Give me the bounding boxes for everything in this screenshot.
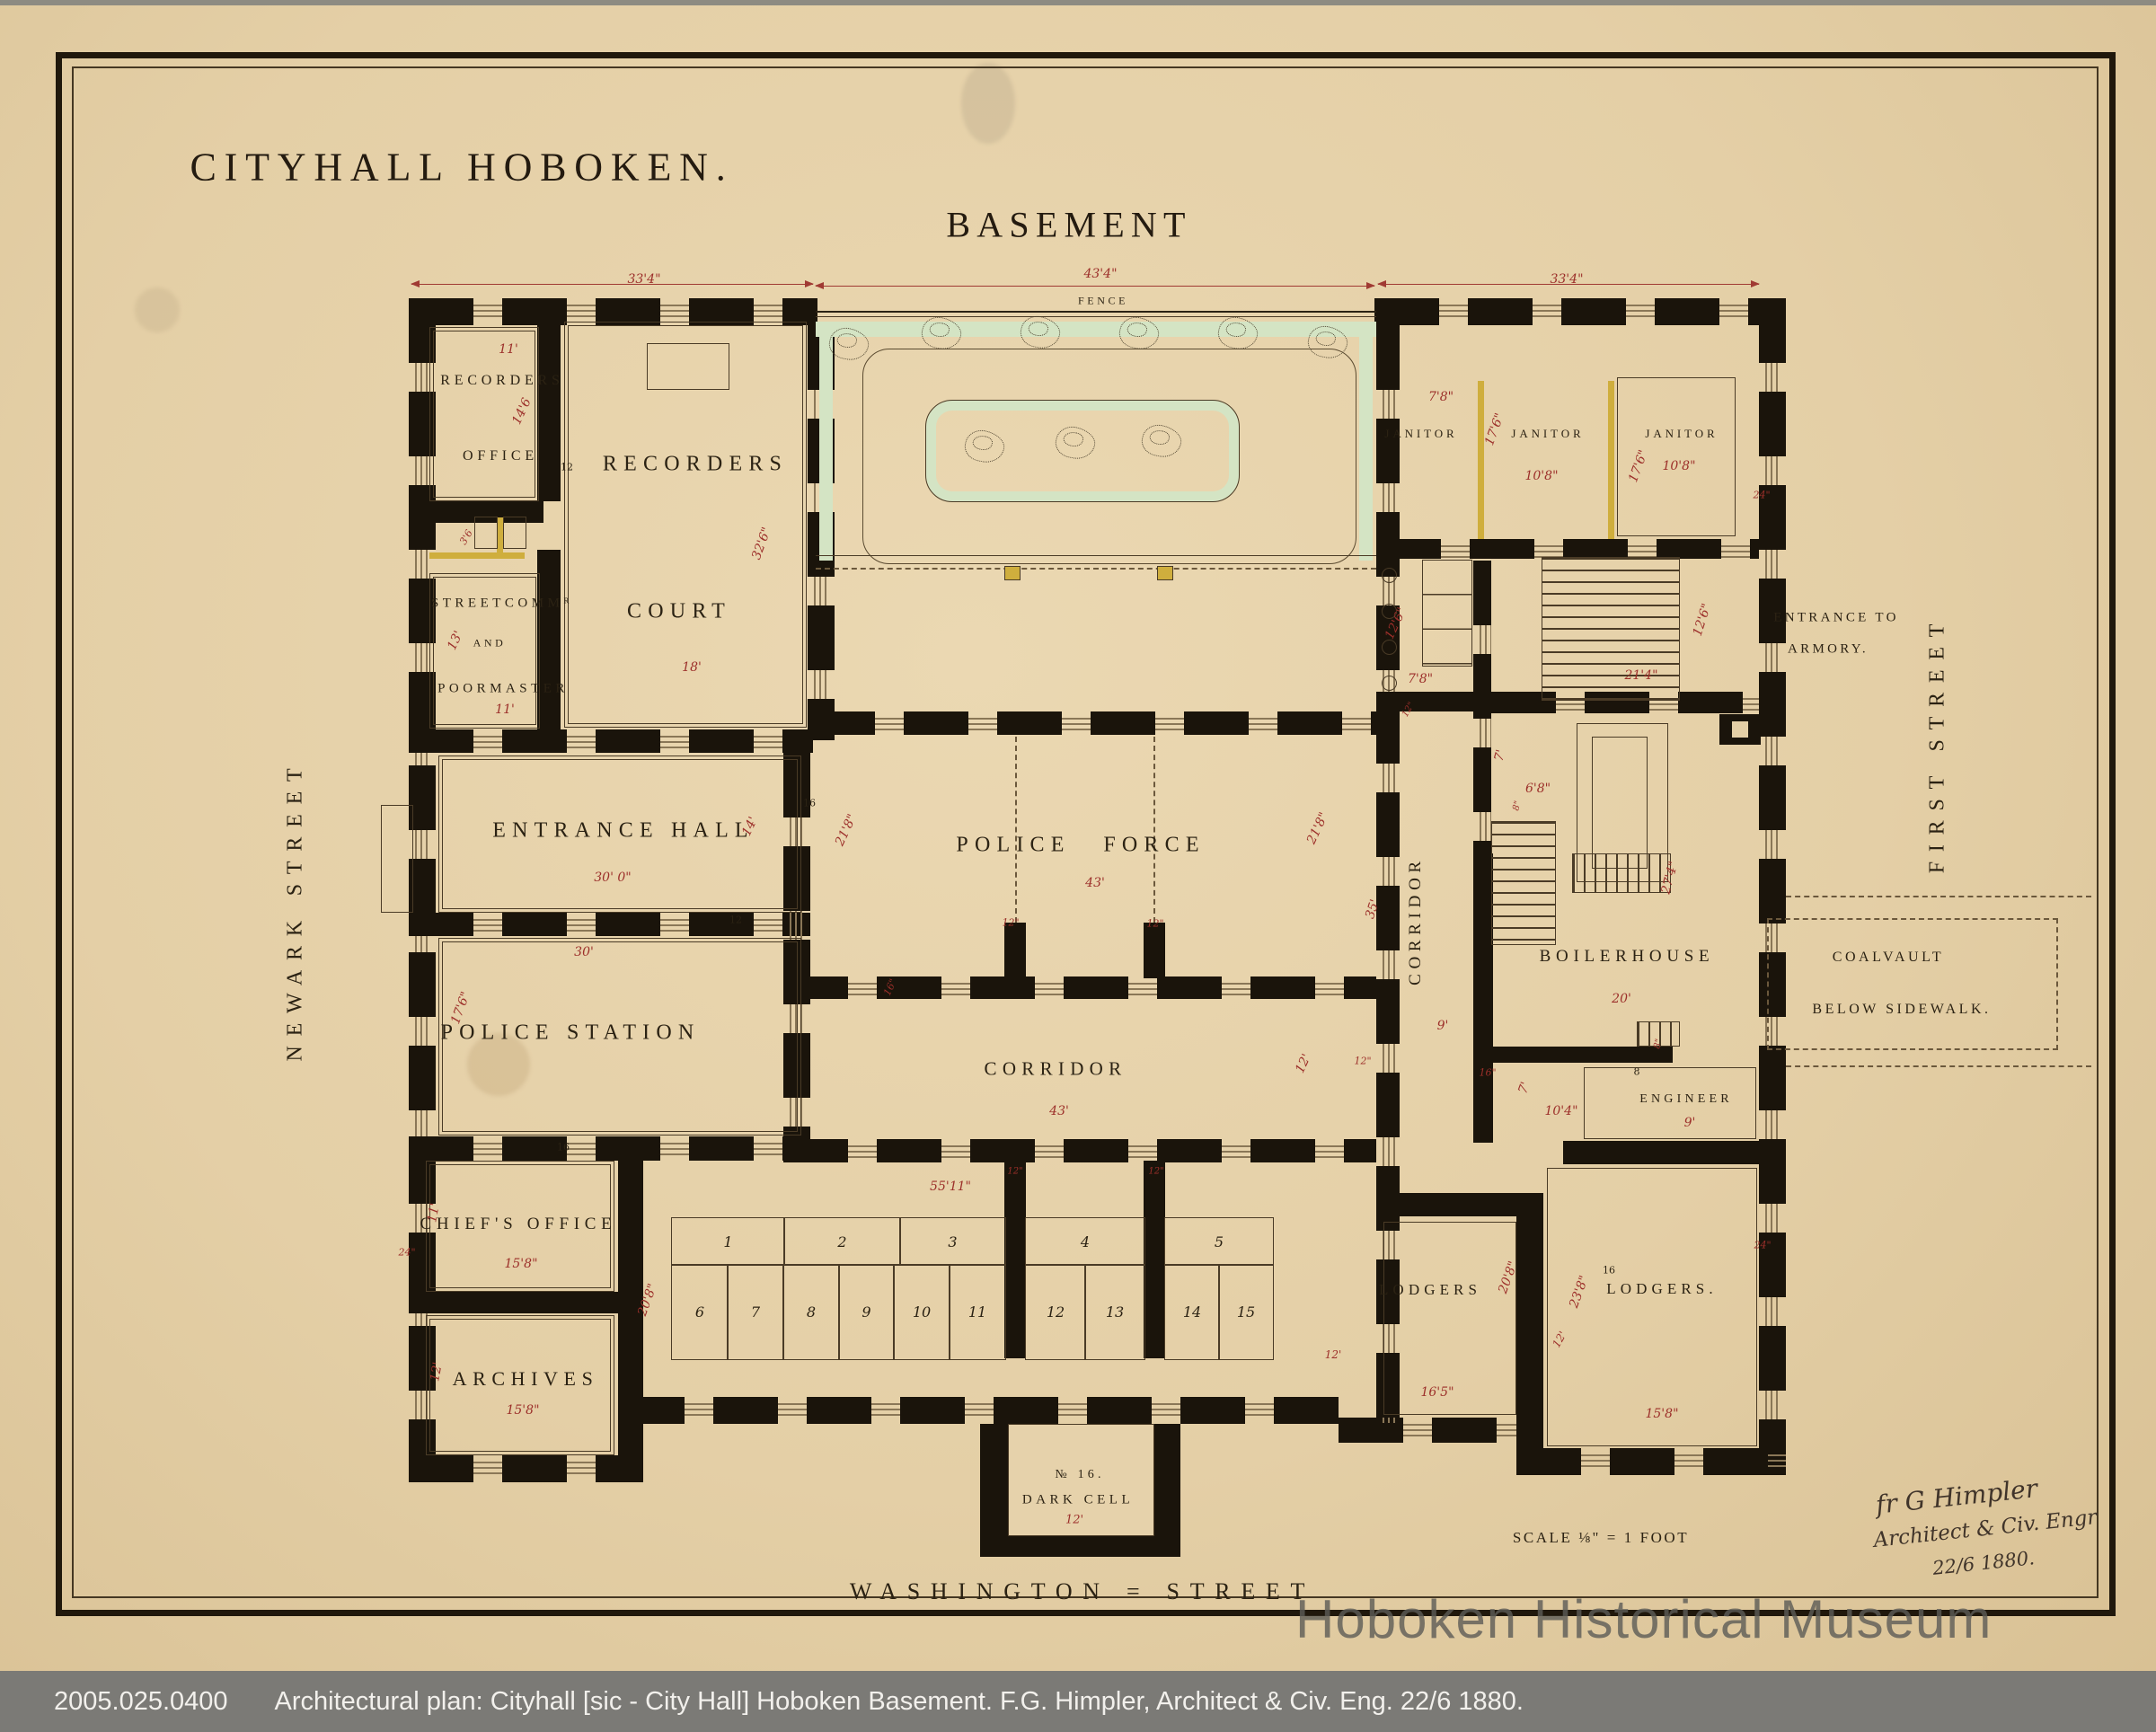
dimension-annotation: 21'4" bbox=[1624, 668, 1657, 683]
garden-border bbox=[816, 322, 1376, 337]
room-label: CORRIDOR bbox=[1406, 856, 1426, 985]
dimension-annotation: 20' bbox=[1612, 992, 1631, 1006]
dimension-annotation: 12' bbox=[1325, 1348, 1342, 1361]
wall bbox=[409, 1136, 810, 1161]
coalvault-label-line2: BELOW SIDEWALK. bbox=[1812, 1002, 1991, 1018]
wall bbox=[1473, 853, 1493, 1143]
dim-line bbox=[816, 286, 1374, 287]
scale-note: SCALE ⅛" = 1 FOOT bbox=[1513, 1529, 1689, 1547]
dimension-annotation: 12' bbox=[1293, 1052, 1314, 1075]
room-label: LODGERS. bbox=[1606, 1280, 1717, 1298]
dimension-annotation: 33'4" bbox=[1550, 272, 1583, 287]
room-label: COURT bbox=[627, 600, 731, 624]
dimension-annotation: 3'6 bbox=[457, 527, 475, 546]
wall bbox=[1516, 1193, 1543, 1462]
room-label: POLICE STATION bbox=[441, 1021, 701, 1046]
prison-cell: 11 bbox=[949, 1264, 1006, 1360]
dimension-annotation: 15'8" bbox=[506, 1403, 539, 1418]
room-label: POLICE bbox=[956, 834, 1070, 858]
bay-window bbox=[381, 805, 413, 913]
dimension-annotation: 12 bbox=[561, 462, 573, 473]
sink-icon bbox=[1382, 640, 1397, 655]
wall bbox=[409, 298, 817, 325]
dimension-annotation: 6'8" bbox=[1525, 782, 1551, 796]
room-label: CORRIDOR bbox=[985, 1058, 1127, 1081]
dimension-annotation: 24" bbox=[1754, 1240, 1771, 1251]
armory-entrance-opening bbox=[1732, 721, 1748, 738]
dim-line bbox=[411, 284, 813, 285]
dimension-annotation: 55'11" bbox=[930, 1180, 971, 1194]
wall bbox=[1374, 298, 1786, 325]
fence-line bbox=[816, 311, 1376, 313]
room-label: ENTRANCE HALL bbox=[492, 819, 755, 844]
dimension-annotation: 15'8" bbox=[504, 1257, 537, 1271]
room-label: FORCE bbox=[1103, 834, 1205, 858]
wall bbox=[1004, 923, 1026, 978]
wall bbox=[783, 1139, 1376, 1162]
wall bbox=[620, 1397, 1339, 1424]
dimension-annotation: 12'6" bbox=[1691, 602, 1715, 638]
prison-cell: 3 bbox=[899, 1217, 1006, 1266]
caption-bar: 2005.025.0400 Architectural plan: Cityha… bbox=[0, 1671, 2156, 1732]
room-label: OFFICE bbox=[463, 448, 538, 464]
gate-post bbox=[1157, 566, 1173, 580]
partition-dashed bbox=[1015, 737, 1017, 923]
fence-line-inner bbox=[816, 316, 1376, 317]
dark-cell-wall bbox=[980, 1534, 1180, 1557]
elevator-shaft-inner bbox=[1592, 737, 1648, 869]
dimension-annotation: 12" bbox=[1146, 918, 1163, 930]
prison-cell: 9 bbox=[838, 1264, 895, 1360]
dimension-annotation: 16 bbox=[557, 1142, 570, 1153]
prison-cell: 12 bbox=[1025, 1264, 1086, 1360]
main-staircase bbox=[1542, 557, 1680, 701]
room-label: JANITOR bbox=[1511, 427, 1584, 441]
garden-border bbox=[819, 325, 833, 561]
armory-note-line2: ARMORY. bbox=[1788, 642, 1869, 658]
prison-cell: 6 bbox=[671, 1264, 729, 1360]
dimension-annotation: 43' bbox=[1049, 1104, 1069, 1118]
room-label: RECORDERS bbox=[440, 373, 563, 389]
accession-number: 2005.025.0400 bbox=[54, 1687, 228, 1717]
wall bbox=[1004, 1161, 1026, 1358]
floor-plan: № 16. DARK CELL 12' bbox=[0, 0, 2156, 1732]
dimension-annotation: 18' bbox=[682, 660, 702, 675]
dimension-annotation: 16'5" bbox=[1420, 1385, 1454, 1400]
coalvault-dashed-bottom bbox=[1786, 1065, 2091, 1067]
small-staircase bbox=[1491, 821, 1556, 945]
court-bench bbox=[647, 343, 729, 390]
wall bbox=[1563, 1141, 1761, 1164]
wall bbox=[1516, 1448, 1786, 1475]
garden-bottom-dashed bbox=[816, 568, 1376, 570]
wall bbox=[1339, 1418, 1518, 1443]
prison-cell: 4 bbox=[1025, 1217, 1145, 1266]
prison-cell: 1 bbox=[671, 1217, 785, 1266]
prison-cell: 13 bbox=[1084, 1264, 1145, 1360]
room-label: CHIEF'S OFFICE bbox=[420, 1215, 617, 1234]
dimension-annotation: 7'8" bbox=[1428, 390, 1454, 404]
scanned-plan-sheet: CITYHALL HOBOKEN. BASEMENT bbox=[0, 0, 2156, 1732]
closet-fixture bbox=[503, 517, 526, 549]
dimension-annotation: 9' bbox=[1684, 1116, 1696, 1130]
dark-cell-dim: 12' bbox=[1065, 1514, 1083, 1527]
dimension-annotation: 17'6" bbox=[1482, 411, 1507, 447]
wall bbox=[618, 1161, 643, 1482]
prison-cell: 15 bbox=[1218, 1264, 1274, 1360]
screenshot-root: { "header": { "title": "CITYHALL HOBOKEN… bbox=[0, 0, 2156, 1732]
dimension-annotation: 16" bbox=[1479, 1067, 1496, 1079]
partition-janitor bbox=[1608, 381, 1614, 539]
room-label: AND bbox=[473, 637, 507, 650]
shrub-icon bbox=[1117, 314, 1162, 352]
wall bbox=[537, 325, 561, 501]
dimension-annotation: 43'4" bbox=[1083, 267, 1117, 281]
prison-cell: 8 bbox=[782, 1264, 840, 1360]
room-label: RECORDERS bbox=[603, 453, 788, 477]
wall bbox=[1473, 561, 1491, 853]
partition-janitor bbox=[1478, 381, 1484, 539]
dimension-annotation: 30' 0" bbox=[594, 870, 631, 885]
dimension-annotation: 30' bbox=[574, 945, 594, 959]
dimension-annotation: 11' bbox=[499, 342, 518, 357]
wall bbox=[1144, 923, 1165, 978]
dimension-annotation: 7'8" bbox=[1408, 672, 1433, 686]
coalvault-dashed-top bbox=[1786, 896, 2091, 897]
dimension-annotation: 24" bbox=[1753, 490, 1770, 501]
coalvault-outline bbox=[1767, 918, 2058, 1050]
dimension-annotation: 10'8" bbox=[1662, 459, 1695, 473]
dimension-annotation: 9' bbox=[1437, 1019, 1449, 1033]
armory-note-line1: ENTRANCE TO bbox=[1773, 611, 1899, 626]
dimension-annotation: 12 bbox=[729, 915, 742, 926]
dimension-annotation: 21'8" bbox=[833, 812, 860, 848]
wall bbox=[1376, 539, 1759, 559]
dimension-annotation: 7' bbox=[1515, 1080, 1533, 1095]
prison-cell: 10 bbox=[893, 1264, 950, 1360]
room-label: JANITOR bbox=[1384, 427, 1457, 441]
architect-signature-line1: fr G Himpler bbox=[1874, 1473, 2038, 1520]
room-label: ARCHIVES bbox=[453, 1367, 599, 1391]
dimension-annotation: 12" bbox=[1002, 917, 1019, 929]
street-label-first: FIRST STREET bbox=[1926, 614, 1950, 874]
shrub-icon bbox=[919, 314, 964, 352]
room-label: STREETCOMMᴿ bbox=[431, 596, 573, 612]
wall bbox=[409, 1455, 624, 1482]
room-label: BOILERHOUSE bbox=[1540, 947, 1715, 967]
dimension-annotation: 33'4" bbox=[627, 272, 660, 287]
dimension-annotation: 8 bbox=[1634, 1066, 1640, 1078]
street-label-washington: WASHINGTON = STREET bbox=[850, 1578, 1315, 1605]
wall bbox=[537, 550, 561, 729]
wall bbox=[409, 1292, 618, 1313]
garden-bottom-line bbox=[816, 555, 1376, 556]
fence-label: FENCE bbox=[1078, 295, 1128, 308]
shrub-icon bbox=[1018, 313, 1063, 351]
wall bbox=[810, 711, 1376, 735]
gate-post bbox=[1004, 566, 1021, 580]
dimension-annotation: 12" bbox=[1354, 1056, 1371, 1067]
coalvault-label-line1: COALVAULT bbox=[1833, 950, 1944, 966]
partition-closet bbox=[497, 517, 503, 555]
prison-cell: 5 bbox=[1164, 1217, 1274, 1266]
dimension-annotation: 43' bbox=[1085, 876, 1105, 890]
dimension-annotation: 12" bbox=[1148, 1167, 1163, 1177]
caption-text: Architectural plan: Cityhall [sic - City… bbox=[275, 1687, 1524, 1717]
wall bbox=[409, 729, 813, 753]
wall bbox=[1376, 1193, 1518, 1216]
dimension-annotation: 11' bbox=[495, 703, 515, 717]
sink-icon bbox=[1382, 568, 1397, 583]
wall bbox=[1759, 298, 1786, 1475]
room-label: ENGINEER bbox=[1639, 1092, 1733, 1107]
sink-icon bbox=[1382, 676, 1397, 691]
room-label: POORMASTER bbox=[437, 682, 569, 697]
museum-watermark: Hoboken Historical Museum bbox=[1295, 1588, 1992, 1650]
dimension-annotation: 12" bbox=[1007, 1167, 1022, 1177]
wall bbox=[409, 913, 810, 936]
prison-cell: 14 bbox=[1164, 1264, 1220, 1360]
architect-signature-line3: 22/6 1880. bbox=[1931, 1547, 2036, 1579]
dark-cell-number: № 16. bbox=[1055, 1468, 1104, 1482]
partition-dashed bbox=[1153, 737, 1155, 923]
wall bbox=[1144, 1161, 1165, 1358]
dark-cell-label: DARK CELL bbox=[1022, 1493, 1134, 1508]
prison-cell: 7 bbox=[727, 1264, 784, 1360]
dimension-annotation: 16 bbox=[1603, 1265, 1615, 1277]
room-label: LODGERS bbox=[1379, 1281, 1481, 1299]
dimension-annotation: 8" bbox=[1511, 800, 1523, 811]
dimension-annotation: 21'8" bbox=[1304, 810, 1331, 846]
dimension-annotation: 15'8" bbox=[1645, 1407, 1678, 1421]
room-label: JANITOR bbox=[1645, 427, 1718, 441]
wall bbox=[1482, 1047, 1673, 1063]
partition-closet bbox=[429, 552, 525, 559]
closet-fixture bbox=[474, 517, 498, 549]
dimension-annotation: 7' bbox=[1492, 748, 1509, 763]
prison-cell: 2 bbox=[783, 1217, 901, 1266]
dimension-annotation: 16 bbox=[803, 798, 816, 809]
washroom-bench bbox=[1422, 560, 1472, 667]
dimension-annotation: 10'8" bbox=[1524, 469, 1558, 483]
wall bbox=[783, 976, 1376, 999]
dimension-annotation: 10'4" bbox=[1544, 1104, 1577, 1118]
dimension-annotation: 24" bbox=[398, 1247, 415, 1259]
street-label-newark: NEWARK STREET bbox=[284, 758, 308, 1061]
shrub-icon bbox=[1215, 314, 1260, 352]
garden-border bbox=[1359, 325, 1373, 561]
